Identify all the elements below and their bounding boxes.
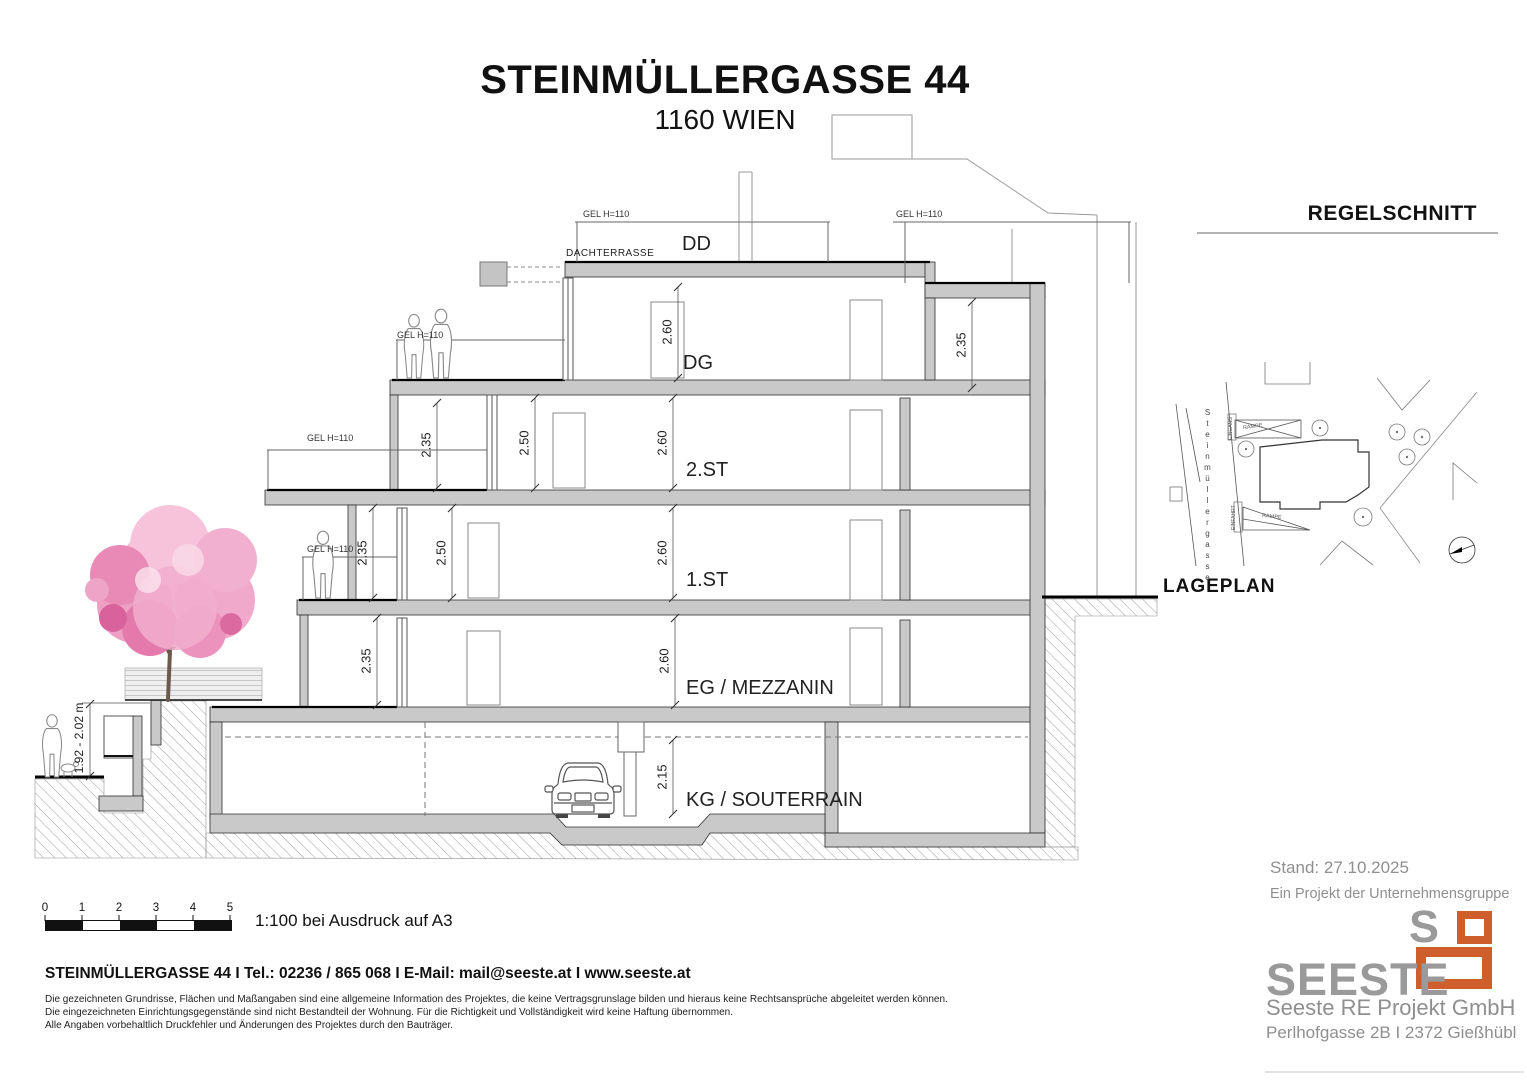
- floor-label-2st: 2.ST: [686, 459, 728, 482]
- dim-dg-main: 2.60: [660, 319, 675, 344]
- floor-label-1st: 1.ST: [686, 569, 728, 592]
- dim-eg-main: 2.60: [657, 648, 672, 673]
- scale-tick-2: 2: [116, 902, 122, 914]
- garage: [225, 722, 1028, 816]
- disclaimer-line-3: Alle Angaben vorbehaltlich Druckfehler u…: [45, 1020, 453, 1031]
- dim-eg-terrace: 2.35: [359, 648, 374, 673]
- person-dg-terrace-2: [431, 309, 452, 378]
- background-chimney-box: [480, 262, 563, 286]
- street-name-label: Steinmüllergasse: [1203, 408, 1212, 540]
- page-subtitle: 1160 WIEN: [420, 104, 1030, 136]
- dim-2st-loggia: 2.50: [517, 430, 532, 455]
- disclaimer-line-2: Die eingezeichneten Einrichtungsgegenstä…: [45, 1007, 733, 1018]
- plan-sheet: STEINMÜLLERGASSE 44 1160 WIEN REGELSCHNI…: [0, 0, 1527, 1080]
- person-dg-terrace-1: [404, 314, 423, 378]
- driveway-label: EINFAHRT: [1231, 505, 1237, 530]
- background-building-outline: [739, 115, 1136, 597]
- roof-terrace-label: DACHTERRASSE: [566, 248, 654, 259]
- siteplan-drawing: [1170, 362, 1477, 566]
- dim-1st-balcony: 2.35: [355, 540, 370, 565]
- entrance-label: EINGANG: [1228, 417, 1234, 440]
- dim-1st-loggia: 2.50: [434, 540, 449, 565]
- scale-tick-0: 0: [42, 902, 48, 914]
- seeste-logo-square-icon: [1457, 911, 1492, 944]
- floor-label-dd: DD: [682, 233, 711, 256]
- railing-label-dd-right: GEL H=110: [896, 209, 942, 219]
- person-street: [43, 715, 62, 777]
- dim-2st-terrace: 2.35: [419, 432, 434, 457]
- person-balcony: [313, 531, 333, 598]
- north-arrow-icon: [1449, 537, 1475, 563]
- scale-tick-3: 3: [153, 902, 159, 914]
- car-icon: [545, 763, 621, 818]
- scale-tick-1: 1: [79, 902, 85, 914]
- floor-label-eg: EG / MEZZANIN: [686, 677, 834, 700]
- dim-dg-right: 2.35: [954, 332, 969, 357]
- planter-steps: [125, 668, 262, 700]
- section-drawing: [0, 0, 1527, 1080]
- company-name: Seeste RE Projekt GmbH: [1266, 995, 1515, 1021]
- contact-line: STEINMÜLLERGASSE 44 I Tel.: 02236 / 865 …: [45, 965, 691, 983]
- seeste-logo-s: S: [1409, 901, 1439, 953]
- dim-kg-main: 2.15: [655, 764, 670, 789]
- company-address: Perlhofgasse 2B I 2372 Gießhübl: [1266, 1023, 1516, 1043]
- scale-tick-4: 4: [190, 902, 196, 914]
- scale-bar: [45, 920, 232, 931]
- disclaimer-line-1: Die gezeichneten Grundrisse, Flächen und…: [45, 994, 948, 1005]
- siteplan-heading: LAGEPLAN: [1163, 576, 1276, 598]
- group-note: Ein Projekt der Unternehmensgruppe: [1270, 886, 1509, 902]
- scale-note: 1:100 bei Ausdruck auf A3: [255, 911, 453, 931]
- page-title: STEINMÜLLERGASSE 44: [420, 58, 1030, 103]
- railing-label-dd-left: GEL H=110: [583, 209, 629, 219]
- dim-street-height: 1.92 - 2.02 m: [72, 703, 86, 774]
- railing-label-2st: GEL H=110: [307, 433, 353, 443]
- railing-label-dg: GEL H=110: [397, 330, 443, 340]
- dim-2st-main: 2.60: [655, 430, 670, 455]
- railing-label-1st: GEL H=110: [307, 544, 353, 554]
- section-heading: REGELSCHNITT: [1180, 202, 1477, 226]
- scale-tick-5: 5: [227, 902, 233, 914]
- status-date: Stand: 27.10.2025: [1270, 858, 1409, 878]
- floor-label-dg: DG: [683, 352, 713, 375]
- dim-1st-main: 2.60: [655, 540, 670, 565]
- floor-label-kg: KG / SOUTERRAIN: [686, 789, 863, 812]
